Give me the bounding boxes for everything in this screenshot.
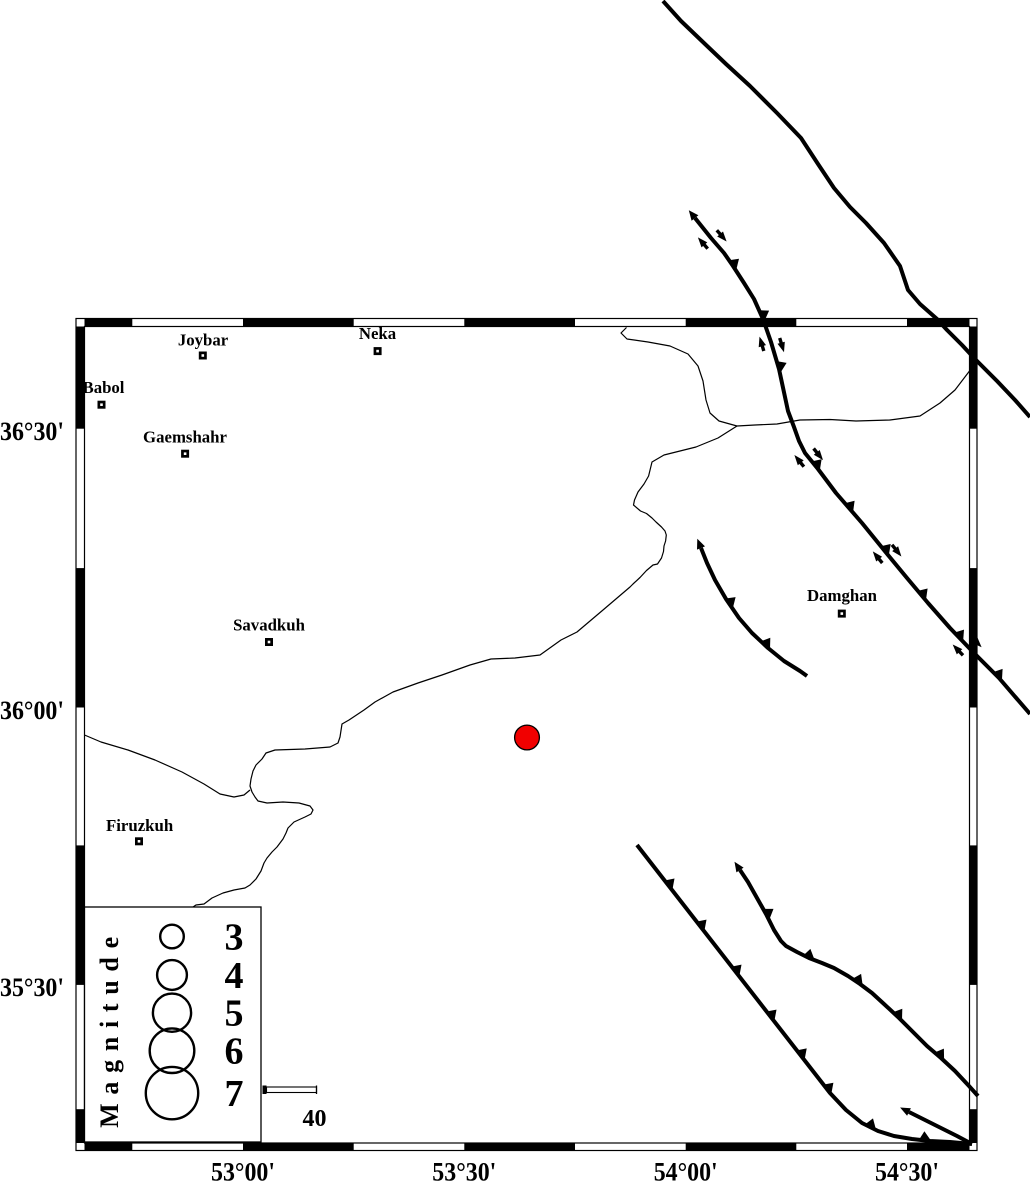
svg-text:6: 6 xyxy=(225,1031,244,1073)
svg-text:40: 40 xyxy=(303,1106,327,1132)
svg-text:36°30': 36°30' xyxy=(0,417,64,446)
svg-text:53°00': 53°00' xyxy=(211,1158,275,1183)
svg-text:Joybar: Joybar xyxy=(178,331,229,350)
svg-text:Neka: Neka xyxy=(359,324,397,343)
svg-text:Babol: Babol xyxy=(83,378,125,397)
svg-text:54°00': 54°00' xyxy=(654,1158,718,1183)
svg-text:5: 5 xyxy=(225,993,244,1035)
svg-text:3: 3 xyxy=(225,917,244,959)
svg-text:54°30': 54°30' xyxy=(875,1158,939,1183)
svg-text:Damghan: Damghan xyxy=(807,586,878,605)
svg-text:Firuzkuh: Firuzkuh xyxy=(106,816,174,835)
svg-text:Magnitude: Magnitude xyxy=(95,928,124,1128)
svg-text:36°00': 36°00' xyxy=(0,696,64,725)
svg-text:Savadkuh: Savadkuh xyxy=(233,615,306,634)
svg-text:35°30': 35°30' xyxy=(0,973,64,1002)
svg-text:7: 7 xyxy=(225,1073,244,1115)
svg-text:53°30': 53°30' xyxy=(432,1158,496,1183)
svg-text:Gaemshahr: Gaemshahr xyxy=(143,427,227,446)
svg-text:4: 4 xyxy=(225,955,244,997)
